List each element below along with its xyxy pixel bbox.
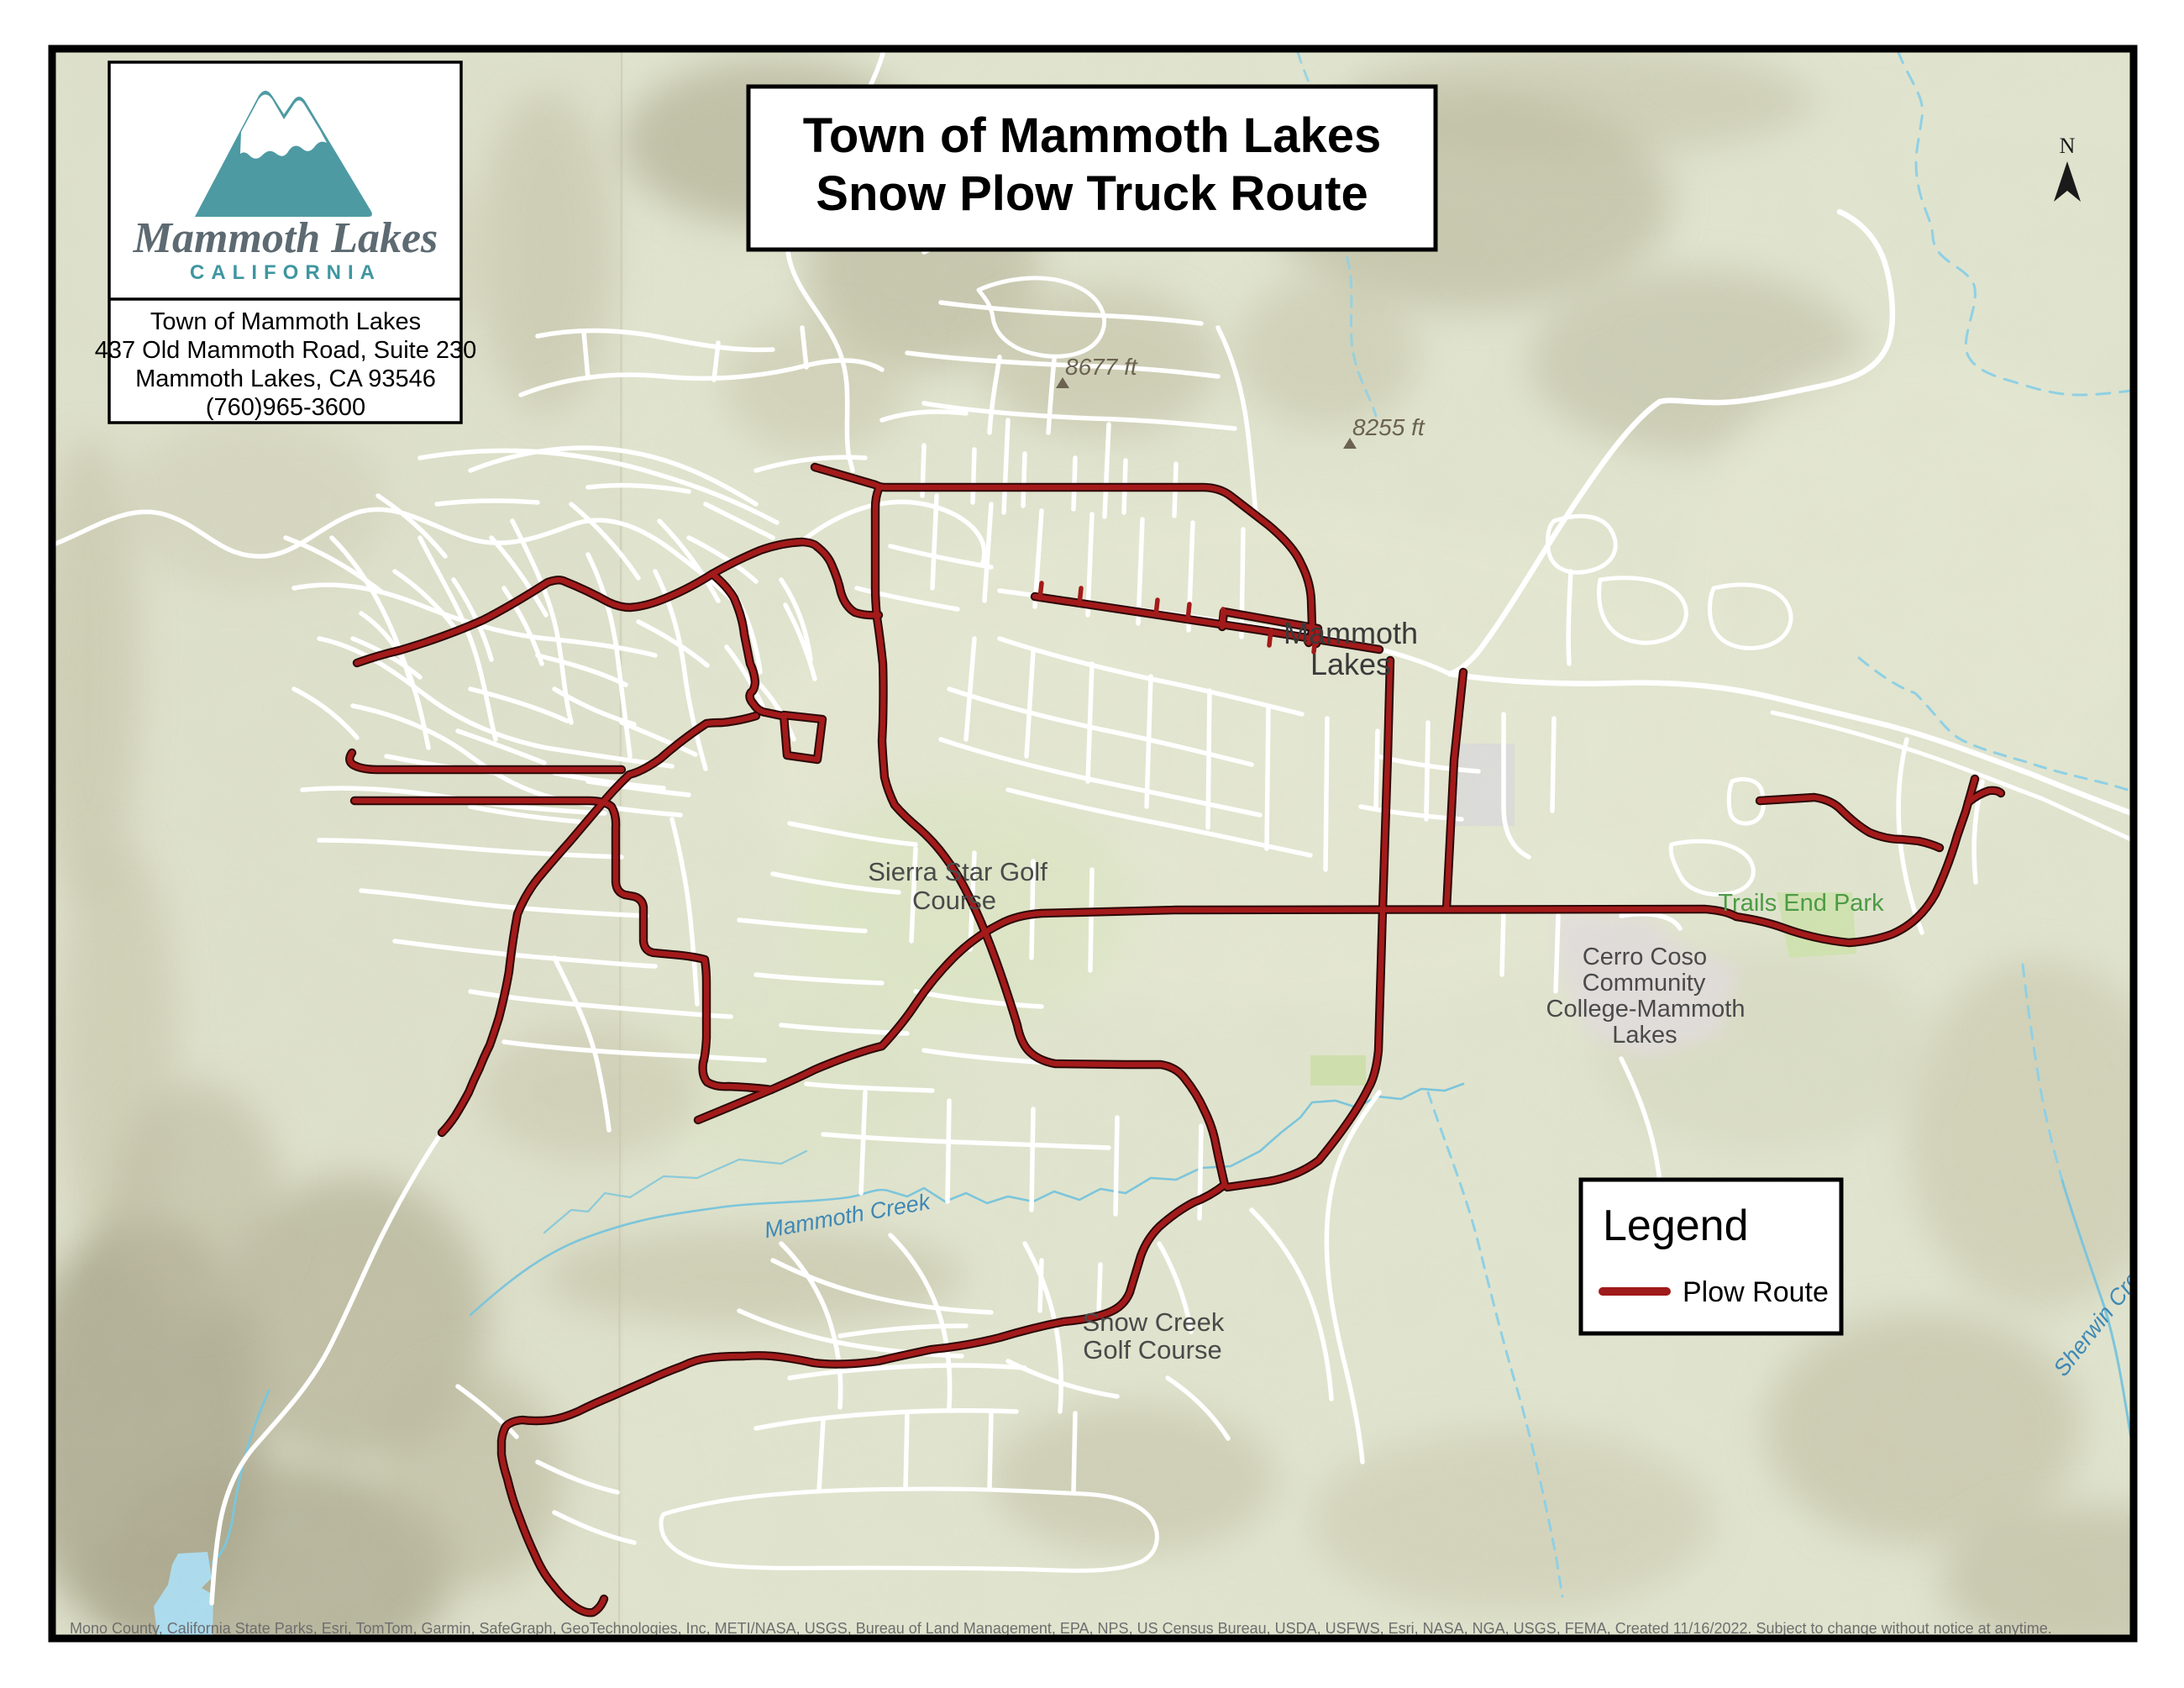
svg-text:437 Old Mammoth Road, Suite 23: 437 Old Mammoth Road, Suite 230 bbox=[95, 337, 477, 364]
svg-text:Town of Mammoth Lakes: Town of Mammoth Lakes bbox=[150, 308, 421, 335]
svg-text:Sierra Star Golf: Sierra Star Golf bbox=[868, 857, 1047, 886]
svg-text:Mammoth Lakes: Mammoth Lakes bbox=[133, 214, 438, 262]
svg-text:College-Mammoth: College-Mammoth bbox=[1546, 996, 1746, 1023]
svg-text:Course: Course bbox=[912, 886, 996, 915]
svg-text:Golf Course: Golf Course bbox=[1083, 1335, 1221, 1365]
svg-text:8255 ft: 8255 ft bbox=[1352, 414, 1425, 440]
svg-text:8677 ft: 8677 ft bbox=[1065, 354, 1138, 380]
svg-text:Community: Community bbox=[1583, 970, 1706, 996]
svg-text:Lakes: Lakes bbox=[1310, 647, 1391, 681]
svg-text:Mammoth Lakes, CA 93546: Mammoth Lakes, CA 93546 bbox=[135, 365, 436, 392]
svg-text:Plow Route: Plow Route bbox=[1683, 1276, 1829, 1308]
svg-text:N: N bbox=[2060, 134, 2076, 158]
svg-text:Mono County, California State: Mono County, California State Parks, Esr… bbox=[70, 1620, 2052, 1637]
svg-text:Mammoth: Mammoth bbox=[1284, 616, 1418, 650]
svg-text:Legend: Legend bbox=[1603, 1202, 1749, 1250]
svg-text:Trails End Park: Trails End Park bbox=[1718, 890, 1884, 917]
svg-text:Lakes: Lakes bbox=[1612, 1022, 1677, 1049]
svg-text:Snow Plow Truck Route: Snow Plow Truck Route bbox=[816, 166, 1368, 221]
svg-text:(760)965-3600: (760)965-3600 bbox=[206, 394, 365, 421]
svg-text:CALIFORNIA: CALIFORNIA bbox=[190, 261, 381, 284]
svg-text:Cerro Coso: Cerro Coso bbox=[1583, 944, 1707, 970]
svg-text:Town of Mammoth Lakes: Town of Mammoth Lakes bbox=[803, 108, 1382, 163]
svg-text:Snow Creek: Snow Creek bbox=[1083, 1307, 1225, 1337]
